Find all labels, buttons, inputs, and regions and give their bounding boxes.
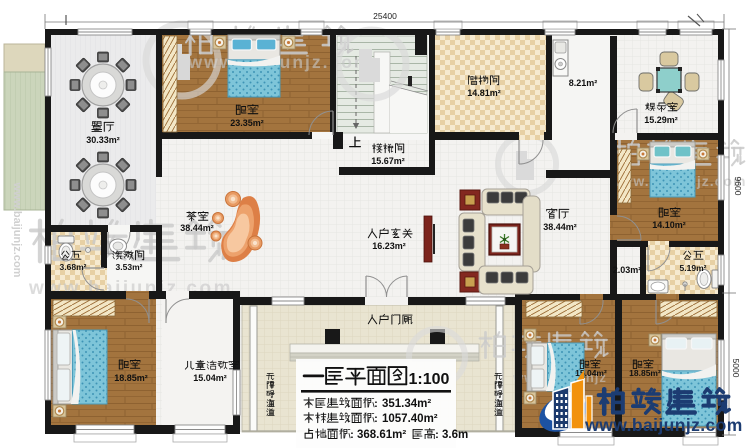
svg-text:1:100: 1:100: [409, 371, 450, 388]
svg-text:5.19m²: 5.19m²: [680, 263, 707, 273]
svg-text:23.35m²: 23.35m²: [230, 118, 264, 128]
svg-text:18.85m²: 18.85m²: [629, 368, 661, 378]
svg-text:38.44m²: 38.44m²: [180, 223, 214, 233]
svg-text:8.21m²: 8.21m²: [569, 78, 598, 88]
svg-text:2.03m²: 2.03m²: [613, 265, 642, 275]
svg-text:3.68m²: 3.68m²: [60, 262, 87, 272]
svg-text:www.baijunjz.com: www.baijunjz.com: [584, 415, 742, 435]
svg-text:15.67m²: 15.67m²: [371, 156, 405, 166]
svg-text:16.23m²: 16.23m²: [372, 241, 406, 251]
svg-text::: :: [374, 413, 378, 425]
svg-text:351.34m²: 351.34m²: [382, 398, 431, 410]
svg-text:14.81m²: 14.81m²: [467, 88, 501, 98]
svg-text:5000: 5000: [731, 359, 741, 378]
svg-text:3.6m: 3.6m: [442, 429, 468, 441]
svg-text:14.10m²: 14.10m²: [652, 220, 686, 230]
svg-text:3.53m²: 3.53m²: [116, 262, 143, 272]
svg-text:30.33m²: 30.33m²: [86, 135, 120, 145]
svg-text::: :: [374, 398, 378, 410]
svg-text:38.44m²: 38.44m²: [543, 222, 577, 232]
svg-text::: :: [435, 429, 439, 441]
svg-text:15.04m²: 15.04m²: [193, 373, 227, 383]
svg-text:18.85m²: 18.85m²: [114, 373, 148, 383]
svg-text:9600: 9600: [733, 177, 743, 196]
svg-text:368.61m²: 368.61m²: [357, 429, 406, 441]
svg-text:1057.40m²: 1057.40m²: [382, 413, 438, 425]
svg-text:15.29m²: 15.29m²: [644, 115, 678, 125]
svg-text::: :: [350, 429, 354, 441]
svg-text:25400: 25400: [373, 11, 397, 21]
svg-text:www.baijunjz.com: www.baijunjz.com: [11, 182, 23, 278]
